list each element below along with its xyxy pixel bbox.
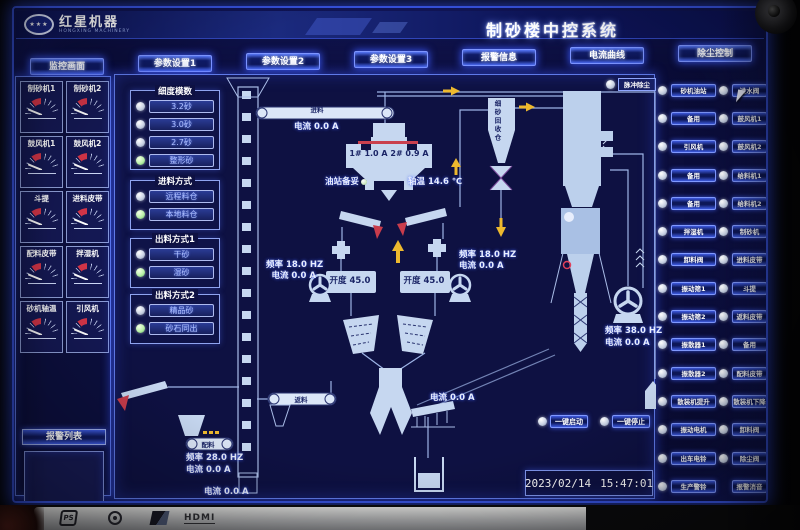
eye-icon [108, 511, 122, 525]
incline-conveyor [117, 381, 168, 411]
feed-mode-panel: 进料方式 远程料仓 本地料仓 [130, 180, 220, 230]
nav-current-curve[interactable]: 电流曲线 [570, 47, 644, 64]
btn-dust-valve[interactable]: 除尘阀 [732, 452, 767, 465]
indicator-light [136, 192, 145, 201]
btn-vibration-motor[interactable]: 振动电机 [671, 423, 716, 436]
header-decoration [372, 22, 408, 33]
indicator-light [658, 312, 667, 321]
oil-ready-indicator [361, 179, 367, 185]
indicator-light [136, 102, 145, 111]
indicator-light [719, 340, 728, 349]
gauge-dial [25, 153, 59, 170]
btn-return-belt[interactable]: 返料皮带 [732, 310, 767, 323]
cross-valves [332, 239, 446, 259]
indicator-light [719, 227, 728, 236]
indicator-light [719, 312, 728, 321]
shaft-temperature: 轴温 14.6 ℃ [408, 175, 462, 187]
nav-param-set-3[interactable]: 参数设置3 [354, 51, 428, 68]
gauge-dial [25, 263, 59, 280]
nav-alarm-info[interactable]: 报警信息 [462, 49, 536, 66]
indicator-light [719, 454, 728, 463]
right-unit-current: 电流 0.0 A [459, 259, 504, 271]
btn-disperser-2[interactable]: 振散器2 [671, 367, 716, 380]
option-sand-gravel-together[interactable]: 砂石同出 [136, 322, 214, 335]
nav-monitor-screen[interactable]: 监控画面 [30, 58, 104, 75]
indicator-light [658, 171, 667, 180]
header-bar: ★★★ 红星机器 HONGXING MACHINERY 制砂楼中控系统 [16, 11, 764, 39]
btn-feed-belt[interactable]: 进料皮带 [732, 253, 767, 266]
ps-badge-icon: PS [59, 510, 78, 526]
indicator-light [136, 306, 145, 315]
btn-mixer[interactable]: 拌湿机 [671, 225, 716, 238]
indicator-light [719, 171, 728, 180]
indicator-light [658, 454, 667, 463]
oil-station-ready: 油站备妥 [325, 175, 367, 187]
indicator-light [658, 284, 667, 293]
btn-spare-2[interactable]: 备用 [671, 169, 716, 182]
crusher-currents: 1# 1.0 A 2# 0.9 A [347, 149, 431, 158]
gauge-dial [71, 98, 105, 115]
btn-spare-4[interactable]: 备用 [732, 338, 767, 351]
dewater-screen-current: 电流 0.0 A [430, 391, 475, 403]
gauge-dial [25, 318, 59, 335]
indicator-light [136, 324, 145, 333]
gauge-id-fan: 引风机 [66, 301, 109, 353]
id-fan [613, 288, 643, 323]
gauge-crusher-2: 制砂机2 [66, 81, 109, 133]
hmi-screen: ★★★ 红星机器 HONGXING MACHINERY 制砂楼中控系统 监控画面… [12, 6, 768, 503]
btn-batch-belt[interactable]: 配料皮带 [732, 367, 767, 380]
btn-sand-maker[interactable]: 制砂机 [732, 225, 767, 238]
return-belt-label: 返料 [283, 394, 319, 404]
crusher-machine [346, 123, 432, 201]
indicator-light [136, 210, 145, 219]
batch-current: 电流 0.0 A [186, 463, 231, 475]
indicator-light [719, 425, 728, 434]
gauge-elevator: 斗提 [20, 191, 63, 243]
one-key-start[interactable]: 一键启动 [538, 415, 588, 428]
btn-truck-departure-bell[interactable]: 出车电铃 [671, 452, 716, 465]
hdmi-logo: HDMI [184, 513, 215, 524]
indicator-light [719, 255, 728, 264]
date-value: 2023/02/14 [525, 477, 591, 490]
option-local-silo[interactable]: 本地料仓 [136, 208, 214, 221]
device-control-panel: 砂机油站 进水阀 备用 鼓风机1 引风机 鼓风机2 备用 给料机1 备用 给料机… [658, 76, 768, 500]
btn-id-fan[interactable]: 引风机 [671, 140, 716, 153]
btn-production-alarm-bell[interactable]: 生产警铃 [671, 480, 716, 493]
brand-star-icon: ★★★ [24, 14, 54, 35]
bezel-strip: PS HDMI [34, 507, 586, 530]
indicator-light [136, 250, 145, 259]
indicator-light [658, 86, 667, 95]
btn-discharge-valve-1[interactable]: 卸料阀 [671, 253, 716, 266]
indicator-light [658, 397, 667, 406]
left-unit-current: 电流 0.0 A [266, 269, 316, 281]
option-premium-sand[interactable]: 精品砂 [136, 304, 214, 317]
gauge-crusher-1: 制砂机1 [20, 81, 63, 133]
indicator-light [719, 142, 728, 151]
gauge-dial [71, 263, 105, 280]
gauge-mixer: 拌湿机 [66, 246, 109, 298]
btn-vibrating-screen-1[interactable]: 振动筛1 [671, 282, 716, 295]
btn-blower-2[interactable]: 鼓风机2 [732, 140, 767, 153]
indicator-light [658, 369, 667, 378]
time-value: 15:47:01 [600, 477, 653, 490]
indicator-light [658, 340, 667, 349]
option-dry-sand[interactable]: 干砂 [136, 248, 214, 261]
btn-disperser-1[interactable]: 振散器1 [671, 338, 716, 351]
id-fan-current: 电流 0.0 A [605, 336, 650, 348]
btn-feeder-1[interactable]: 给料机1 [732, 169, 767, 182]
gauge-batch-belt: 配料皮带 [20, 246, 63, 298]
batch-frequency: 频率 28.0 HZ [186, 451, 243, 463]
indicator-light [658, 425, 667, 434]
option-remote-silo[interactable]: 远程料仓 [136, 190, 214, 203]
feed-belt-current: 电流 0.0 A [294, 120, 339, 132]
pulse-dust-status: 脉冲除尘 [606, 78, 656, 91]
id-fan-frequency: 频率 38.0 HZ [605, 324, 662, 336]
monitor-bezel: PS HDMI [0, 505, 800, 530]
btn-bulk-loader-lower[interactable]: 散装机下降 [732, 395, 767, 408]
batch-belt-label: 配料 [190, 439, 226, 449]
indicator-light [719, 284, 728, 293]
right-unit-opening: 开度 45.0 [399, 270, 449, 292]
nav-param-set-2[interactable]: 参数设置2 [246, 53, 320, 70]
indicator-light [136, 138, 145, 147]
panel-title: 进料方式 [155, 175, 195, 187]
gauge-dial [25, 98, 59, 115]
panel-title: 细度模数 [155, 85, 195, 97]
indicator-light [658, 142, 667, 151]
panel-title: 出料方式1 [152, 233, 198, 245]
start-button[interactable]: 一键启动 [550, 415, 588, 428]
nav-dust-control[interactable]: 除尘控制 [678, 45, 752, 62]
indicator-light [658, 255, 667, 264]
option-sand-3-0[interactable]: 3.0砂 [136, 118, 214, 131]
fineness-modulus-panel: 细度模数 3.2砂 3.0砂 2.7砂 整形砂 [130, 90, 220, 170]
water-tank [415, 457, 443, 491]
left-unit-opening: 开度 45.0 [325, 270, 375, 292]
webcam [755, 0, 797, 34]
indicator-light [658, 114, 667, 123]
alarm-list [24, 451, 104, 503]
indicator-light [658, 227, 667, 236]
btn-spare-1[interactable]: 备用 [671, 112, 716, 125]
indicator-light [719, 114, 728, 123]
screen-chutes [343, 315, 433, 354]
indicator-light [658, 199, 667, 208]
gauge-shaft-temp: 砂机轴温 [20, 301, 63, 353]
brand-logo: ★★★ 红星机器 HONGXING MACHINERY [24, 14, 130, 35]
feed-belt-label: 进料 [303, 104, 331, 114]
btn-vibrating-screen-2[interactable]: 振动筛2 [671, 310, 716, 323]
btn-alarm-mute[interactable]: 报警消音 [732, 480, 767, 493]
option-sand-2-7[interactable]: 2.7砂 [136, 136, 214, 149]
gauge-blower-2: 鼓风机2 [66, 136, 109, 188]
brand-name: 红星机器 [59, 16, 130, 29]
gauge-dial [25, 208, 59, 225]
y-chute [370, 368, 412, 435]
panel-title: 出料方式2 [152, 289, 198, 301]
bulk-loader-top [645, 381, 656, 409]
alarm-list-button[interactable]: 报警列表 [22, 429, 106, 445]
one-key-stop[interactable]: 一键停止 [600, 415, 650, 428]
discharge-mode-1-panel: 出料方式1 干砂 湿砂 [130, 238, 220, 288]
indicator-light [719, 86, 728, 95]
page-title: 制砂楼中控系统 [486, 17, 619, 41]
btn-blower-1[interactable]: 鼓风机1 [732, 112, 767, 125]
start-indicator-light [538, 417, 547, 426]
stop-button[interactable]: 一键停止 [612, 415, 650, 428]
btn-sand-machine-oil-station[interactable]: 砂机油站 [671, 84, 716, 97]
recycle-bin-label: 细砂回收仓 [492, 100, 502, 158]
indicator-light [719, 199, 728, 208]
flag-icon [150, 511, 170, 525]
batch-hopper [178, 415, 219, 436]
option-sand-3-2[interactable]: 3.2砂 [136, 100, 214, 113]
btn-bucket-elevator[interactable]: 斗提 [732, 282, 767, 295]
btn-feeder-2[interactable]: 给料机2 [732, 197, 767, 210]
gauge-panel: 制砂机1 制砂机2 鼓风机1 鼓风机2 斗提 进料皮带 配料皮带 拌湿机 砂机轴… [15, 76, 111, 496]
gauge-feed-belt: 进料皮带 [66, 191, 109, 243]
nav-param-set-1[interactable]: 参数设置1 [138, 55, 212, 72]
gauge-dial [71, 318, 105, 335]
btn-discharge-valve-2[interactable]: 卸料阀 [732, 423, 767, 436]
indicator-light [719, 369, 728, 378]
indicator-light [136, 268, 145, 277]
bucket-elevator [227, 78, 269, 493]
header-decoration [305, 18, 372, 35]
monitor-photo: ★★★ 红星机器 HONGXING MACHINERY 制砂楼中控系统 监控画面… [0, 0, 800, 530]
option-shaped-sand[interactable]: 整形砂 [136, 154, 214, 167]
btn-bulk-loader-raise[interactable]: 散装机提升 [671, 395, 716, 408]
btn-spare-3[interactable]: 备用 [671, 197, 716, 210]
gauge-blower-1: 鼓风机1 [20, 136, 63, 188]
stop-indicator-light [600, 417, 609, 426]
baghouse-dust-collector [551, 91, 613, 352]
discharge-mode-2-panel: 出料方式2 精品砂 砂石同出 [130, 294, 220, 344]
vibrating-feeders [339, 208, 447, 239]
indicator-light [136, 120, 145, 129]
reflection-blob [0, 505, 44, 530]
indicator-light [136, 156, 145, 165]
indicator-light [719, 397, 728, 406]
gauge-dial [71, 208, 105, 225]
option-wet-sand[interactable]: 湿砂 [136, 266, 214, 279]
pulse-indicator-light [606, 80, 615, 89]
brand-subtitle: HONGXING MACHINERY [59, 29, 130, 34]
gauge-dial [71, 153, 105, 170]
datetime-display: 2023/02/14 15:47:01 [525, 470, 653, 496]
indicator-light [658, 482, 667, 491]
elevator-current: 电流 0.0 A [204, 485, 249, 497]
